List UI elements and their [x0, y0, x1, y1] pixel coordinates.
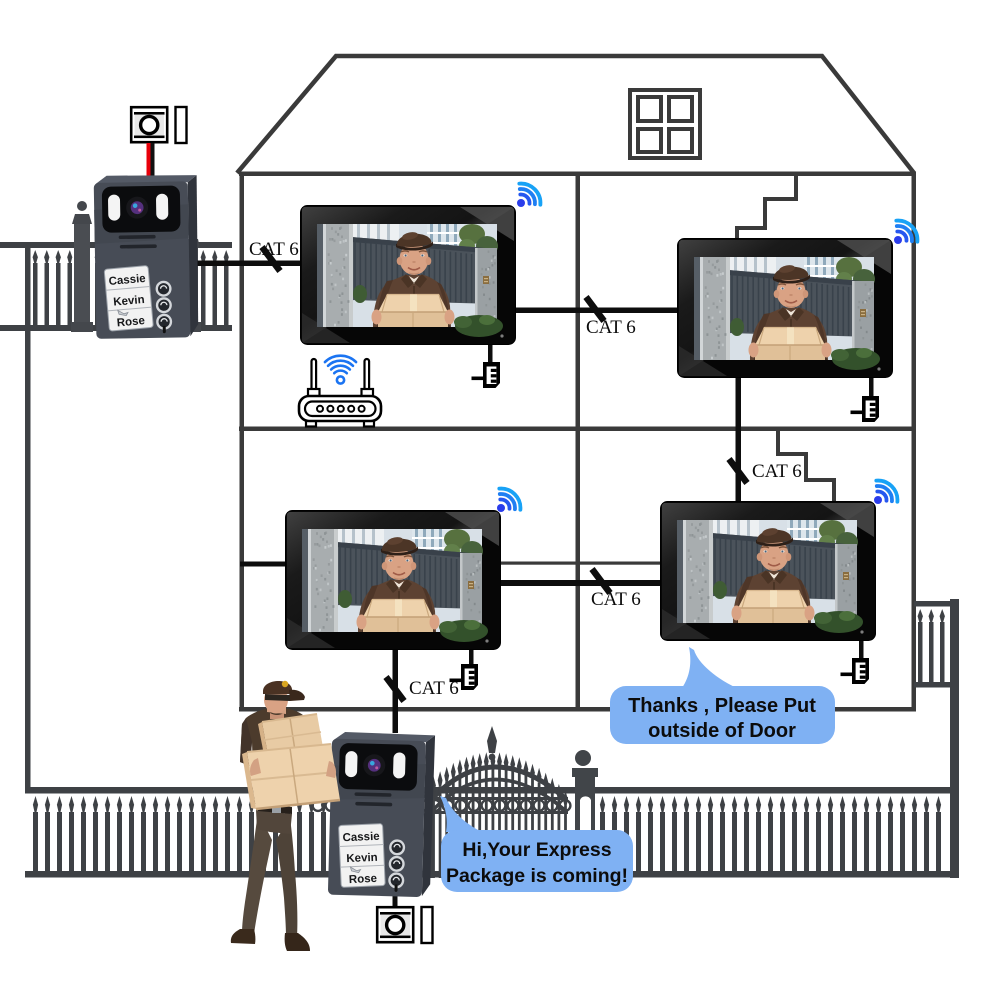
svg-text:CAT 6: CAT 6	[249, 239, 299, 260]
svg-text:Hi,Your Express: Hi,Your Express	[462, 839, 611, 861]
svg-text:CAT 6: CAT 6	[752, 461, 802, 482]
svg-text:CAT 6: CAT 6	[586, 317, 636, 338]
svg-text:Package is coming!: Package is coming!	[446, 865, 628, 887]
svg-text:outside of Door: outside of Door	[648, 720, 796, 742]
svg-text:Thanks , Please Put: Thanks , Please Put	[628, 695, 816, 717]
svg-text:CAT 6: CAT 6	[591, 589, 641, 610]
